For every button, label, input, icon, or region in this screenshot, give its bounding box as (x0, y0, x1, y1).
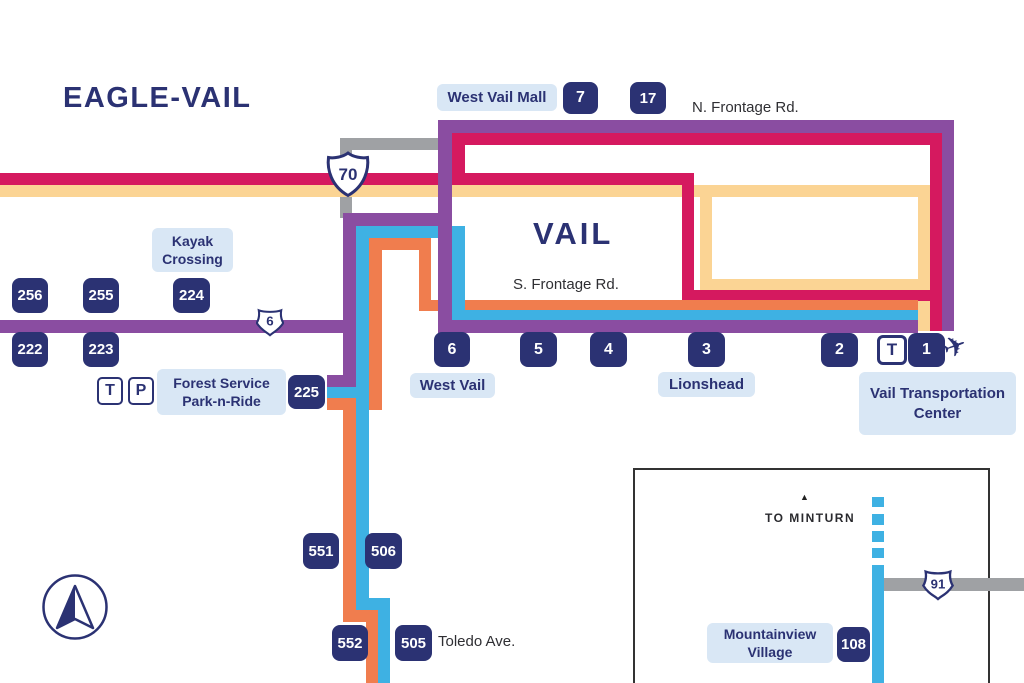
stop-badge-551: 551 (303, 533, 339, 569)
line-orange-mid-vertical (343, 398, 356, 622)
line-blue-bottom-vertical (378, 598, 390, 683)
parking-icon: P (128, 377, 154, 405)
stop-badge-3: 3 (688, 332, 725, 367)
line-pink-loop-right (930, 133, 942, 331)
line-purple-main-vertical (438, 120, 452, 333)
us91-road (884, 578, 1024, 591)
label-forest-service-park-n-ride: Forest Service Park-n-Ride (157, 369, 286, 415)
stop-badge-7: 7 (563, 82, 598, 114)
stop-badge-552: 552 (332, 625, 368, 661)
stop-badge-224: 224 (173, 278, 210, 313)
line-blue-inset-dash (872, 548, 884, 558)
label-lionshead: Lionshead (658, 372, 755, 397)
region-title-eagle-vail: EAGLE-VAIL (63, 82, 251, 115)
stop-badge-17: 17 (630, 82, 666, 114)
stop-badge-505: 505 (395, 625, 432, 661)
line-blue-inset-solid (872, 565, 884, 683)
road-label-toledo: Toledo Ave. (438, 633, 515, 650)
stop-badge-506: 506 (365, 533, 402, 569)
stop-badge-2: 2 (821, 333, 858, 367)
route6-shield-icon: 6 (256, 306, 284, 337)
line-orange-west-vertical (369, 238, 382, 410)
line-pink-spur-vertical (452, 133, 465, 185)
stop-badge-223: 223 (83, 332, 119, 367)
line-pink-loop-left (682, 173, 694, 301)
label-west-vail-mall: West Vail Mall (437, 84, 557, 111)
line-pink-n-frontage (452, 133, 942, 145)
label-kayak-crossing: Kayak Crossing (152, 228, 233, 272)
line-purple-s-frontage (438, 320, 918, 333)
transit-icon: T (97, 377, 123, 405)
to-minturn-arrow-icon: ▲ (800, 492, 809, 502)
stop-badge-4: 4 (590, 332, 627, 367)
stop-badge-108: 108 (837, 627, 870, 662)
stop-badge-255: 255 (83, 278, 119, 313)
svg-text:70: 70 (339, 165, 358, 184)
label-west-vail: West Vail (410, 373, 495, 398)
label-vail-transportation-center: Vail Transportation Center (859, 372, 1016, 435)
line-yellow-loop-right (918, 185, 930, 331)
road-label-to-minturn: TO MINTURN (765, 511, 855, 525)
line-purple-n-frontage (438, 120, 954, 133)
line-purple-west-branch (350, 213, 452, 226)
line-purple-west-vertical (343, 213, 356, 387)
transit-map: 70 6 91 EAGLE-VAIL VAIL N. Frontage Rd. … (0, 0, 1024, 683)
stop-badge-256: 256 (12, 278, 48, 313)
label-mountainview-village: Mountainview Village (707, 623, 833, 663)
svg-text:91: 91 (931, 577, 946, 592)
stop-badge-5: 5 (520, 332, 557, 367)
line-yellow-main (0, 185, 930, 197)
line-purple-225-endcap (327, 375, 356, 387)
line-purple-right-vertical (942, 120, 954, 331)
us91-shield-icon: 91 (922, 567, 954, 601)
line-blue-225-tab (327, 387, 356, 398)
stop-badge-6: 6 (434, 332, 470, 367)
road-label-s-frontage: S. Frontage Rd. (513, 276, 619, 293)
i70-shield-icon: 70 (325, 150, 371, 198)
line-blue-inset-dash (872, 531, 884, 542)
region-title-vail: VAIL (533, 216, 613, 252)
transit-center-icon: T (877, 335, 907, 365)
road-label-n-frontage: N. Frontage Rd. (692, 99, 799, 116)
line-yellow-loop-bottom (700, 279, 930, 290)
i70-road-horizontal (346, 138, 438, 150)
svg-text:6: 6 (266, 314, 273, 329)
stop-badge-225: 225 (288, 375, 325, 409)
stop-badge-222: 222 (12, 332, 48, 367)
line-blue-inset-dash (872, 497, 884, 507)
line-blue-inset-dash (872, 514, 884, 525)
line-yellow-loop-left (700, 185, 712, 290)
line-purple-route6-west (0, 320, 356, 333)
line-blue-east-vertical (452, 226, 465, 321)
north-compass-icon (41, 573, 109, 641)
